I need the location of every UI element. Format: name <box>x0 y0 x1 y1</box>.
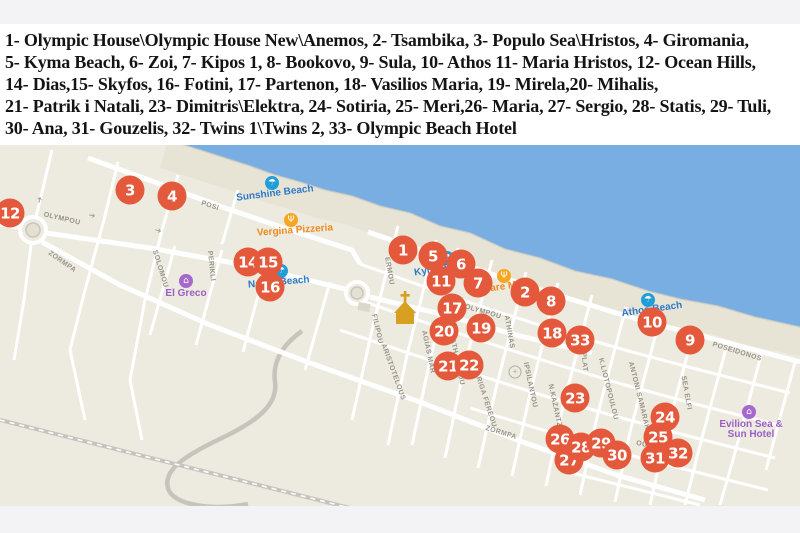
map-marker-8[interactable]: 8 <box>537 287 566 316</box>
poi-label: Sunshine Beach <box>236 184 314 203</box>
poi-label: El Greco <box>165 289 206 299</box>
one-way-arrow-icon: ➔ <box>88 211 96 220</box>
poi-label: Evilion Sea &Sun Hotel <box>719 420 782 440</box>
one-way-arrow-icon: ➔ <box>35 196 44 204</box>
map-marker-12[interactable]: 12 <box>0 199 25 228</box>
legend-line-5: 30- Ana, 31- Gouzelis, 32- Twins 1\Twins… <box>5 117 800 139</box>
map-marker-1[interactable]: 1 <box>389 236 418 265</box>
map-marker-9[interactable]: 9 <box>676 326 705 355</box>
poi-label: Vergina Pizzeria <box>257 223 334 238</box>
legend-line-2: 5- Kyma Beach, 6- Zoi, 7- Kipos 1, 8- Bo… <box>5 51 800 73</box>
street-label-olympou: OLYMPOU <box>43 211 81 226</box>
street-label-athinas: ATHINAS <box>503 315 516 349</box>
street-label-riga-fereou: RIGA FEREOU <box>475 376 498 428</box>
map-legend: 1- Olympic House\Olympic House New\Anemo… <box>0 24 800 145</box>
map-marker-19[interactable]: 19 <box>467 314 496 343</box>
street-label-poseidonos: POSEIDONOS <box>712 341 763 363</box>
map-marker-2[interactable]: 2 <box>511 278 540 307</box>
street-label-aristotelous: ARISTOTELOUS <box>380 343 407 401</box>
street-label-k-liotopoulou: K.LIOTOPOULOU <box>597 357 619 420</box>
hotel-poi-icon[interactable]: ⌂ <box>179 274 193 288</box>
street-label-filipou: FILIPOU <box>370 313 384 344</box>
hotel-poi-icon[interactable]: ⌂ <box>742 405 756 419</box>
map-marker-4[interactable]: 4 <box>158 182 187 211</box>
screenshot-root: OLYMPOUOLYMPOUZORMPAZORMPAPOSIPOSEIDONOS… <box>0 0 800 533</box>
street-label-zormpa: ZORMPA <box>485 425 518 441</box>
map-marker-18[interactable]: 18 <box>538 319 567 348</box>
legend-line-3: 14- Dias,15- Skyfos, 16- Fotini, 17- Par… <box>5 73 800 95</box>
map-marker-16[interactable]: 16 <box>256 273 285 302</box>
map-marker-3[interactable]: 3 <box>116 176 145 205</box>
street-label-plat: PLAT <box>580 352 589 372</box>
map-marker-23[interactable]: 23 <box>561 384 590 413</box>
map-marker-30[interactable]: 30 <box>603 441 632 470</box>
map-marker-20[interactable]: 20 <box>430 317 459 346</box>
map-marker-10[interactable]: 10 <box>638 308 667 337</box>
legend-line-4: 21- Patrik i Natali, 23- Dimitris\Elektr… <box>5 95 800 117</box>
street-label-solomou: SOLOMOU <box>151 249 169 288</box>
street-label-perikli: PERIKLI <box>206 251 216 282</box>
gas-poi-icon[interactable]: + <box>509 366 522 379</box>
street-label-zormpa: ZORMPA <box>47 250 77 274</box>
street-label-ipsilantou: IPSILANTOU <box>522 362 538 409</box>
map-marker-32[interactable]: 32 <box>664 439 693 468</box>
legend-line-1: 1- Olympic House\Olympic House New\Anemo… <box>5 29 800 51</box>
street-label-posi: POSI <box>200 200 220 212</box>
one-way-arrow-icon: ➔ <box>154 226 162 235</box>
map-marker-22[interactable]: 22 <box>455 351 484 380</box>
street-label-antoni-samaraki: ANTONI SAMARAKI <box>627 361 651 433</box>
map-marker-33[interactable]: 33 <box>566 326 595 355</box>
map-marker-11[interactable]: 11 <box>427 267 456 296</box>
map-marker-7[interactable]: 7 <box>464 269 493 298</box>
street-label-sea-elfi: SEA ELFI <box>680 375 693 410</box>
